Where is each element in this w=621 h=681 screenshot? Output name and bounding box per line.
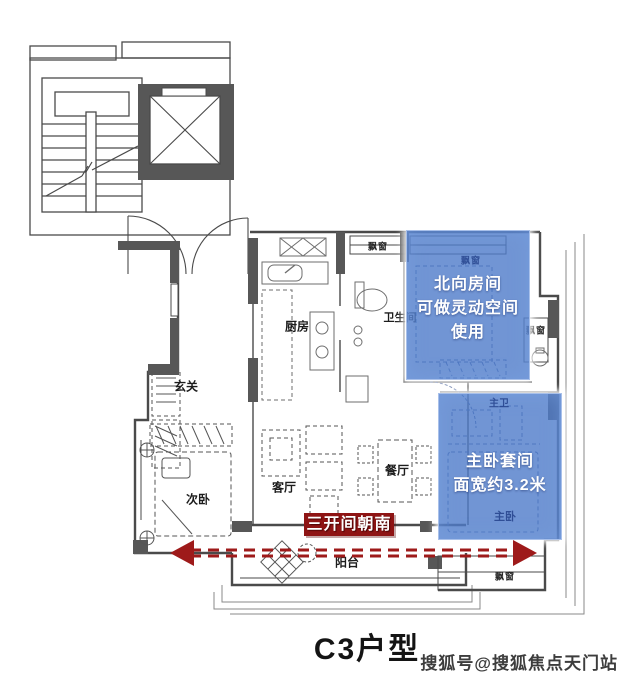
arrowhead-right	[513, 540, 537, 566]
arrowhead-left	[170, 540, 194, 566]
south-span-arrow	[0, 0, 621, 681]
watermark: 搜狐号@搜狐焦点天门站	[420, 649, 618, 674]
